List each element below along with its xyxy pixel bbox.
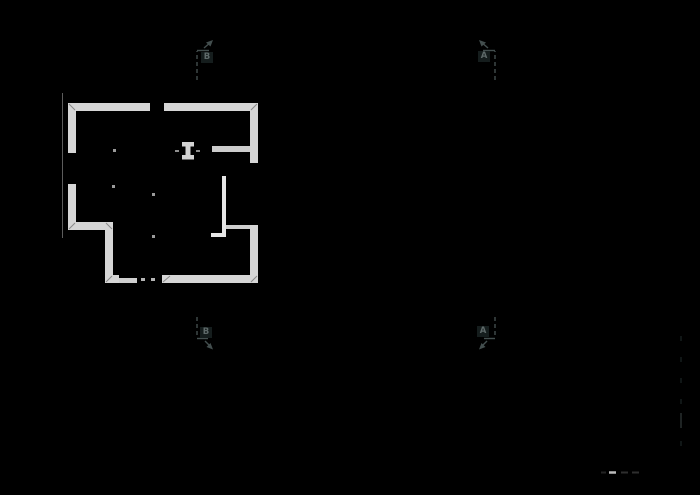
interior-walls — [211, 146, 250, 237]
miter-joints — [69, 104, 257, 282]
wall-bottom-right — [162, 275, 258, 283]
interior-wall-leg — [211, 233, 226, 237]
steel-column-icon — [175, 142, 200, 160]
door-sill — [119, 278, 137, 283]
wall-right-lower — [250, 225, 258, 283]
centerline-tick-right — [196, 150, 200, 152]
wall-step-vertical — [105, 222, 113, 283]
section-label-a-top: A — [478, 51, 490, 62]
interior-wall-horizontal — [212, 146, 250, 152]
exterior-walls — [68, 103, 258, 283]
centerline-tick-left — [175, 150, 179, 152]
floor-plan-svg — [0, 0, 700, 495]
interior-wall-vertical — [222, 176, 226, 237]
section-label-b-bottom: B — [200, 327, 212, 338]
wall-top-left — [68, 103, 150, 111]
wall-lower-right-thin — [225, 225, 250, 229]
wall-right-upper — [250, 103, 258, 163]
drawing-canvas: B A B A — [0, 0, 700, 495]
door-opening-ticks — [141, 278, 155, 281]
faint-frame-dashes — [601, 336, 681, 473]
section-label-b-top: B — [201, 52, 213, 63]
wall-left-upper — [68, 111, 76, 153]
wall-top-right — [164, 103, 258, 111]
column-dots — [112, 149, 155, 238]
section-label-a-bottom: A — [477, 326, 489, 337]
